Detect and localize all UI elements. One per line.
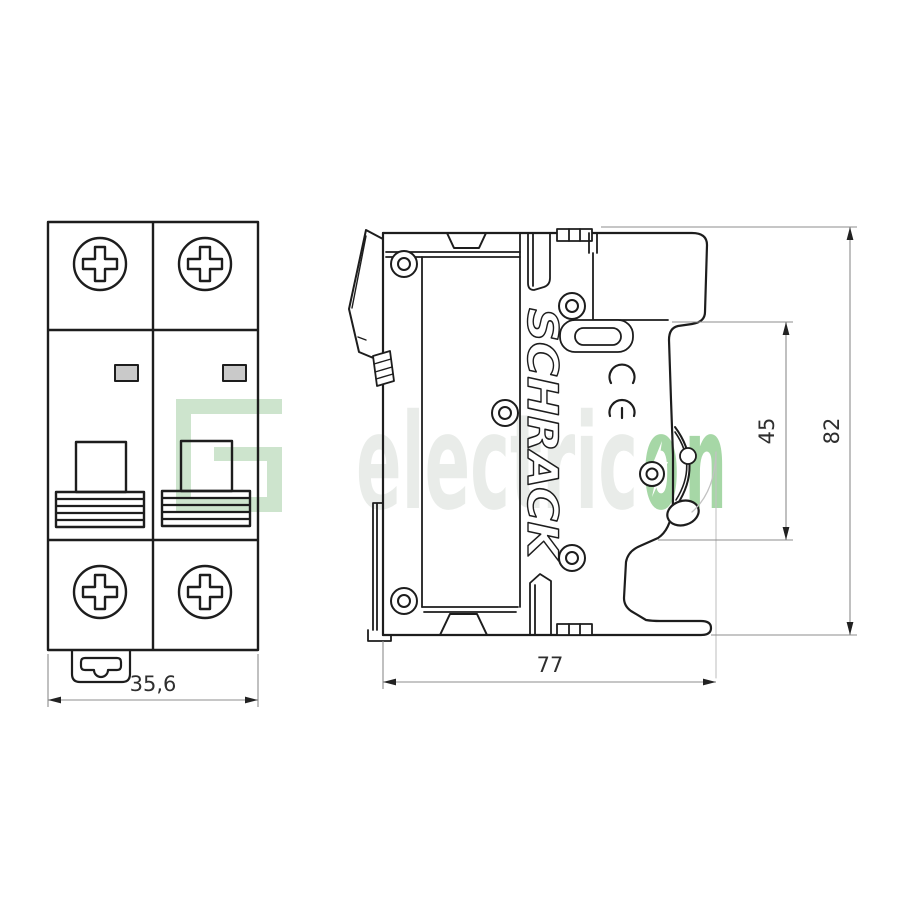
rivet: [391, 251, 417, 277]
screw-top-right: [179, 238, 231, 290]
indicator-window-right: [223, 365, 246, 381]
bottom-clip-bump: [440, 614, 487, 635]
front-section-step: [589, 233, 668, 320]
dim-label-front-width: 35,6: [130, 672, 177, 696]
drawing-svg: electric o n: [0, 0, 900, 900]
rivet: [391, 588, 417, 614]
top-clip-bump: [447, 233, 486, 248]
toggle-handle-left: [56, 442, 144, 527]
hatched-tab: [373, 351, 394, 386]
screw-bottom-left: [74, 566, 126, 618]
ext-lines-82: [601, 227, 857, 635]
indicator-window-left: [115, 365, 138, 381]
screw-top-left: [74, 238, 126, 290]
dim-label-total-height: 82: [820, 418, 844, 445]
technical-drawing: electric o n: [0, 0, 900, 900]
rivet: [492, 400, 518, 426]
din-release-clip: [349, 230, 383, 361]
dim-label-side-depth: 77: [537, 653, 564, 677]
screw-bottom-right: [179, 566, 231, 618]
dim-label-front-height: 45: [755, 418, 779, 445]
lever-pivot: [680, 448, 696, 464]
watermark-logo-icon: [176, 399, 282, 512]
comb-teeth-bottom: [557, 624, 592, 635]
brand-text: SCHRACK: [518, 308, 567, 562]
toggle-slot-pill: [560, 320, 633, 352]
lower-slot: [530, 574, 551, 635]
comb-teeth-top: [557, 229, 592, 241]
rivet: [640, 462, 664, 486]
upper-slot: [528, 233, 550, 290]
din-clip-front: [72, 650, 130, 682]
